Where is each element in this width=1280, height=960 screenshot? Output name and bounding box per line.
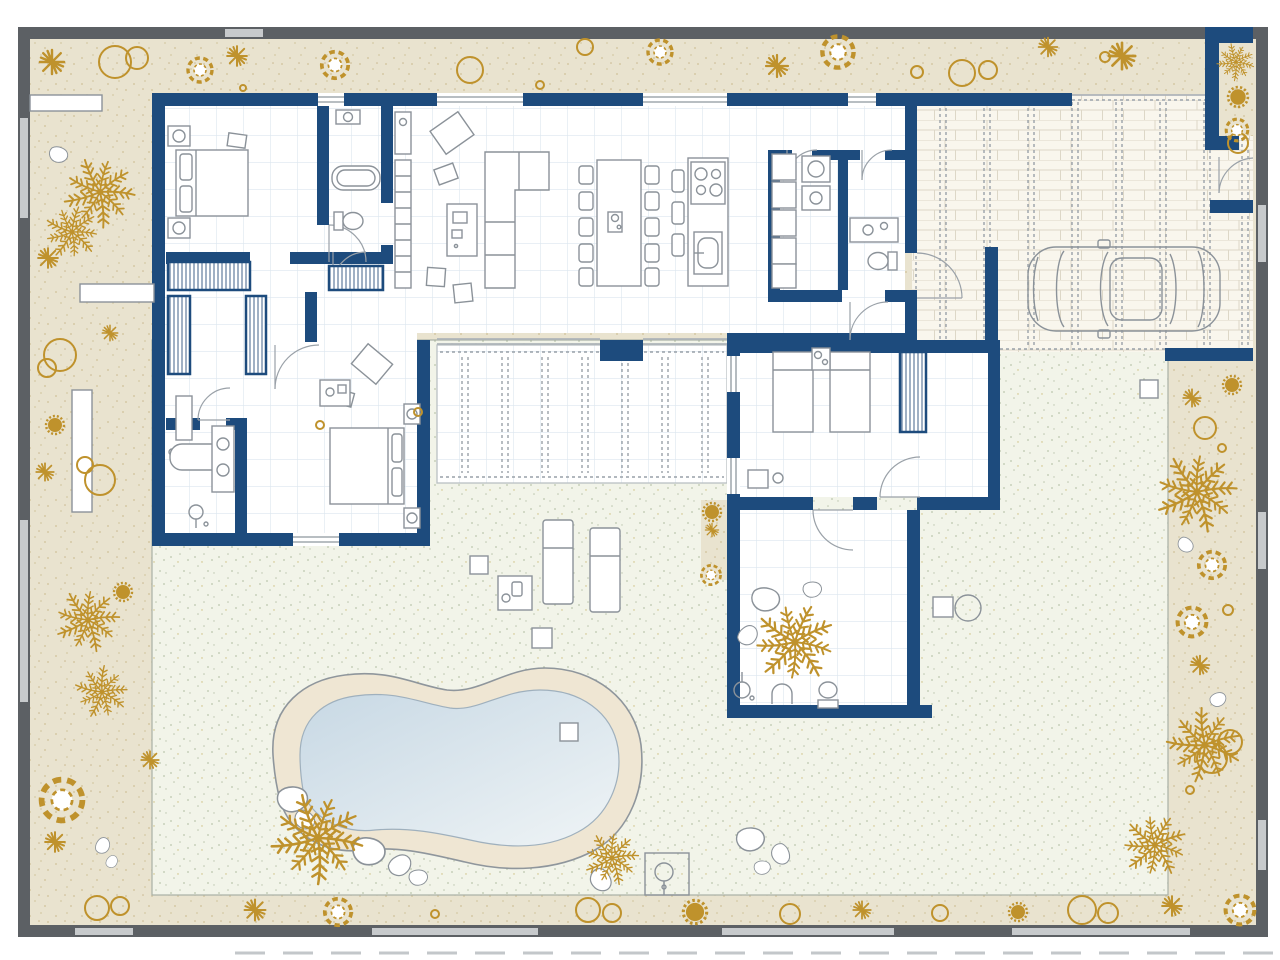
shrub-burst — [1039, 38, 1058, 57]
wardrobe — [900, 352, 926, 432]
wardrobe — [246, 296, 266, 374]
wardrobe — [329, 266, 383, 290]
wardrobe — [168, 262, 250, 290]
shrub-burst — [1191, 656, 1210, 675]
shrub-burst — [1162, 896, 1182, 916]
shrub-burst — [227, 46, 247, 66]
shrub-burst — [766, 55, 788, 77]
south-wall-window — [293, 533, 339, 546]
shrub-burst — [1183, 389, 1201, 407]
shrub-burst — [102, 325, 117, 340]
garden-pad — [1140, 380, 1158, 398]
garden-pad — [470, 556, 488, 574]
shrub-burst — [141, 751, 159, 769]
floor-plan-page — [0, 0, 1280, 960]
deck-pergola — [437, 345, 727, 483]
shrub-burst — [38, 248, 58, 268]
shrub-burst — [245, 900, 266, 921]
shrub-burst — [1109, 43, 1135, 69]
wardrobe — [168, 296, 190, 374]
pool-pad — [560, 723, 578, 741]
shrub-burst — [853, 901, 871, 919]
shrub-burst — [40, 50, 64, 74]
shrub-burst — [45, 832, 65, 852]
shrub-burst — [705, 523, 718, 536]
master-bedroom-furniture — [168, 126, 250, 290]
garden-pad — [532, 628, 552, 648]
floor-plan-drawing — [0, 0, 1280, 960]
shrub-burst — [36, 463, 54, 481]
